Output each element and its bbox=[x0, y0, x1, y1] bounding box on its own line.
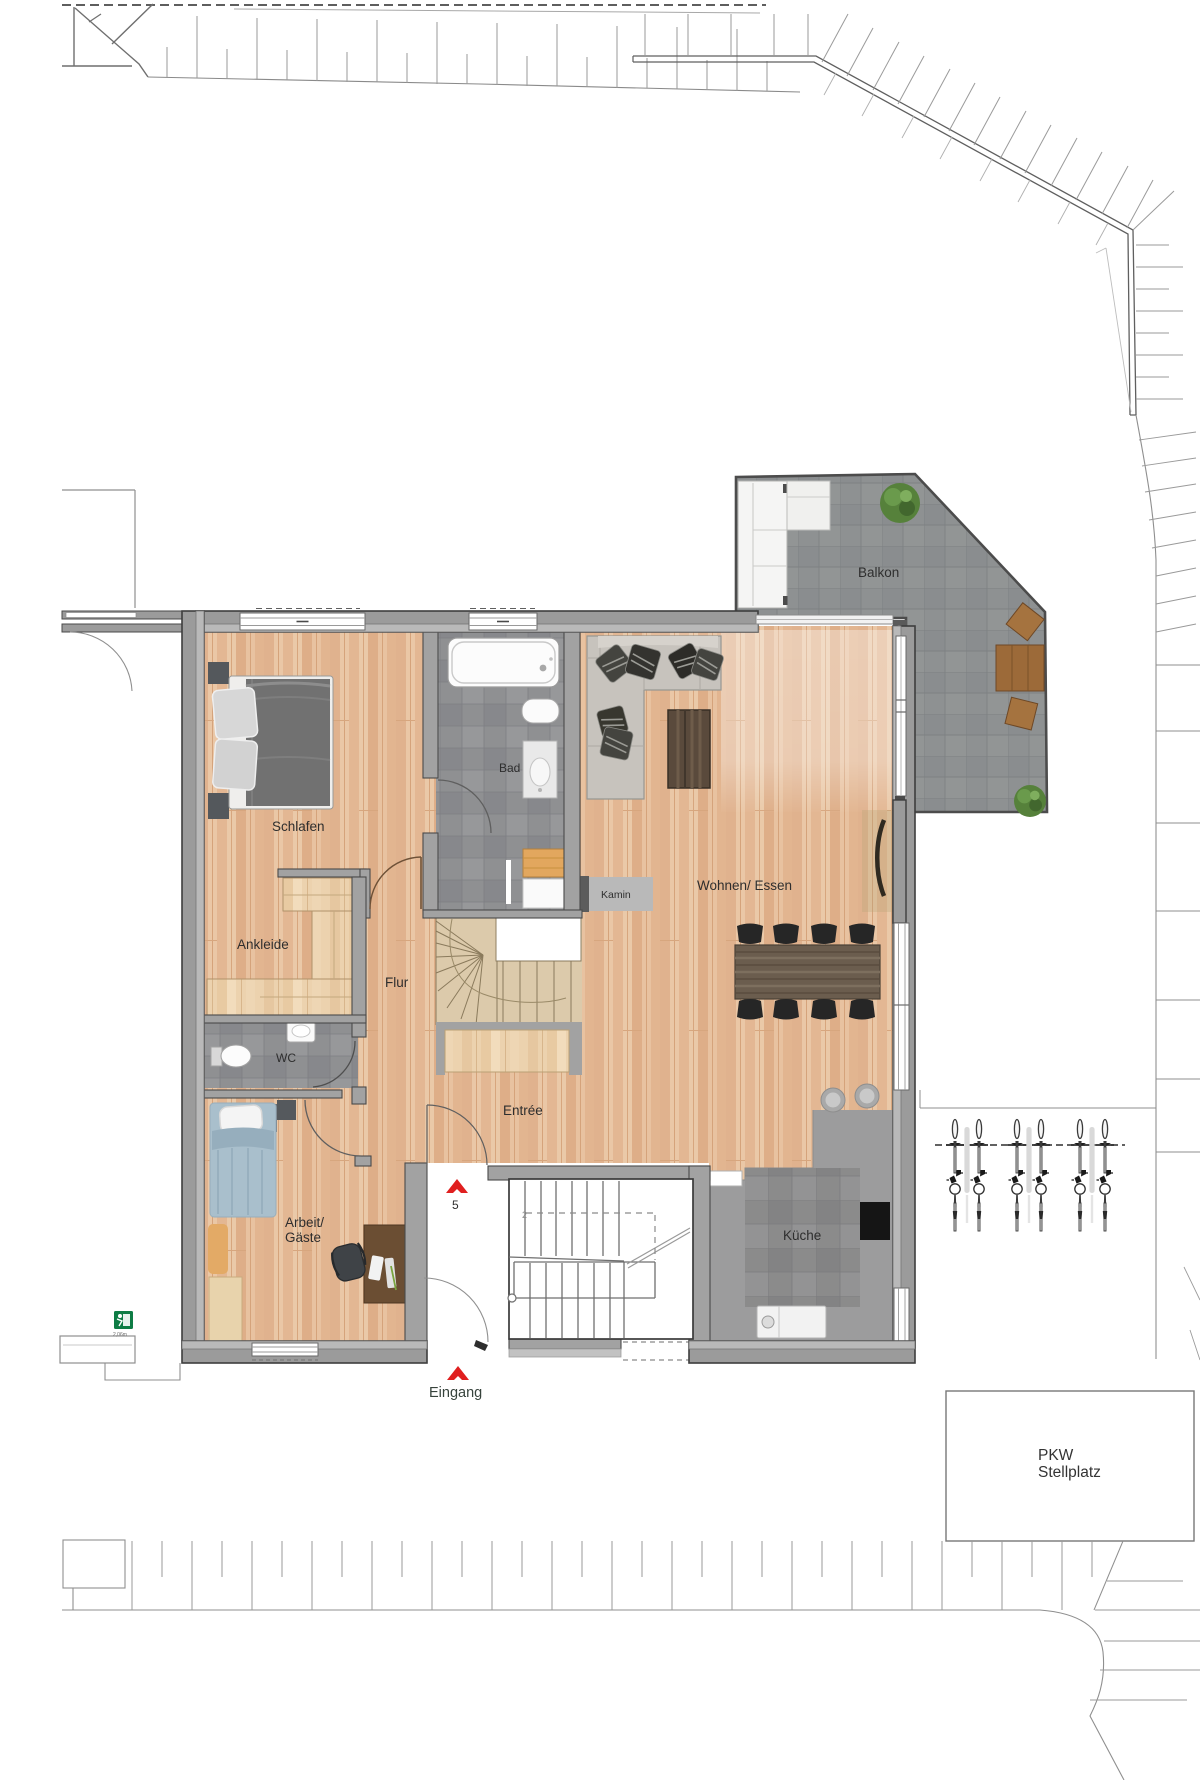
svg-text:Kamin: Kamin bbox=[601, 889, 631, 901]
svg-text:Gäste: Gäste bbox=[285, 1230, 321, 1245]
svg-text:5: 5 bbox=[452, 1198, 459, 1212]
svg-text:Balkon: Balkon bbox=[858, 565, 899, 580]
svg-text:Eingang: Eingang bbox=[429, 1385, 482, 1401]
svg-text:2: 2 bbox=[522, 1210, 527, 1220]
svg-text:Flur: Flur bbox=[385, 975, 409, 990]
svg-text:Küche: Küche bbox=[783, 1228, 821, 1243]
svg-text:WC: WC bbox=[276, 1051, 296, 1065]
svg-text:Ankleide: Ankleide bbox=[237, 937, 289, 952]
svg-text:Entrée: Entrée bbox=[503, 1103, 543, 1118]
svg-text:Bad: Bad bbox=[499, 761, 520, 775]
svg-text:Wohnen/ Essen: Wohnen/ Essen bbox=[697, 878, 792, 893]
svg-text:PKW: PKW bbox=[1038, 1447, 1074, 1464]
svg-text:Stellplatz: Stellplatz bbox=[1038, 1464, 1101, 1481]
svg-text:Arbeit/: Arbeit/ bbox=[285, 1215, 324, 1230]
svg-text:2,06m: 2,06m bbox=[113, 1332, 127, 1338]
svg-text:Schlafen: Schlafen bbox=[272, 819, 325, 834]
